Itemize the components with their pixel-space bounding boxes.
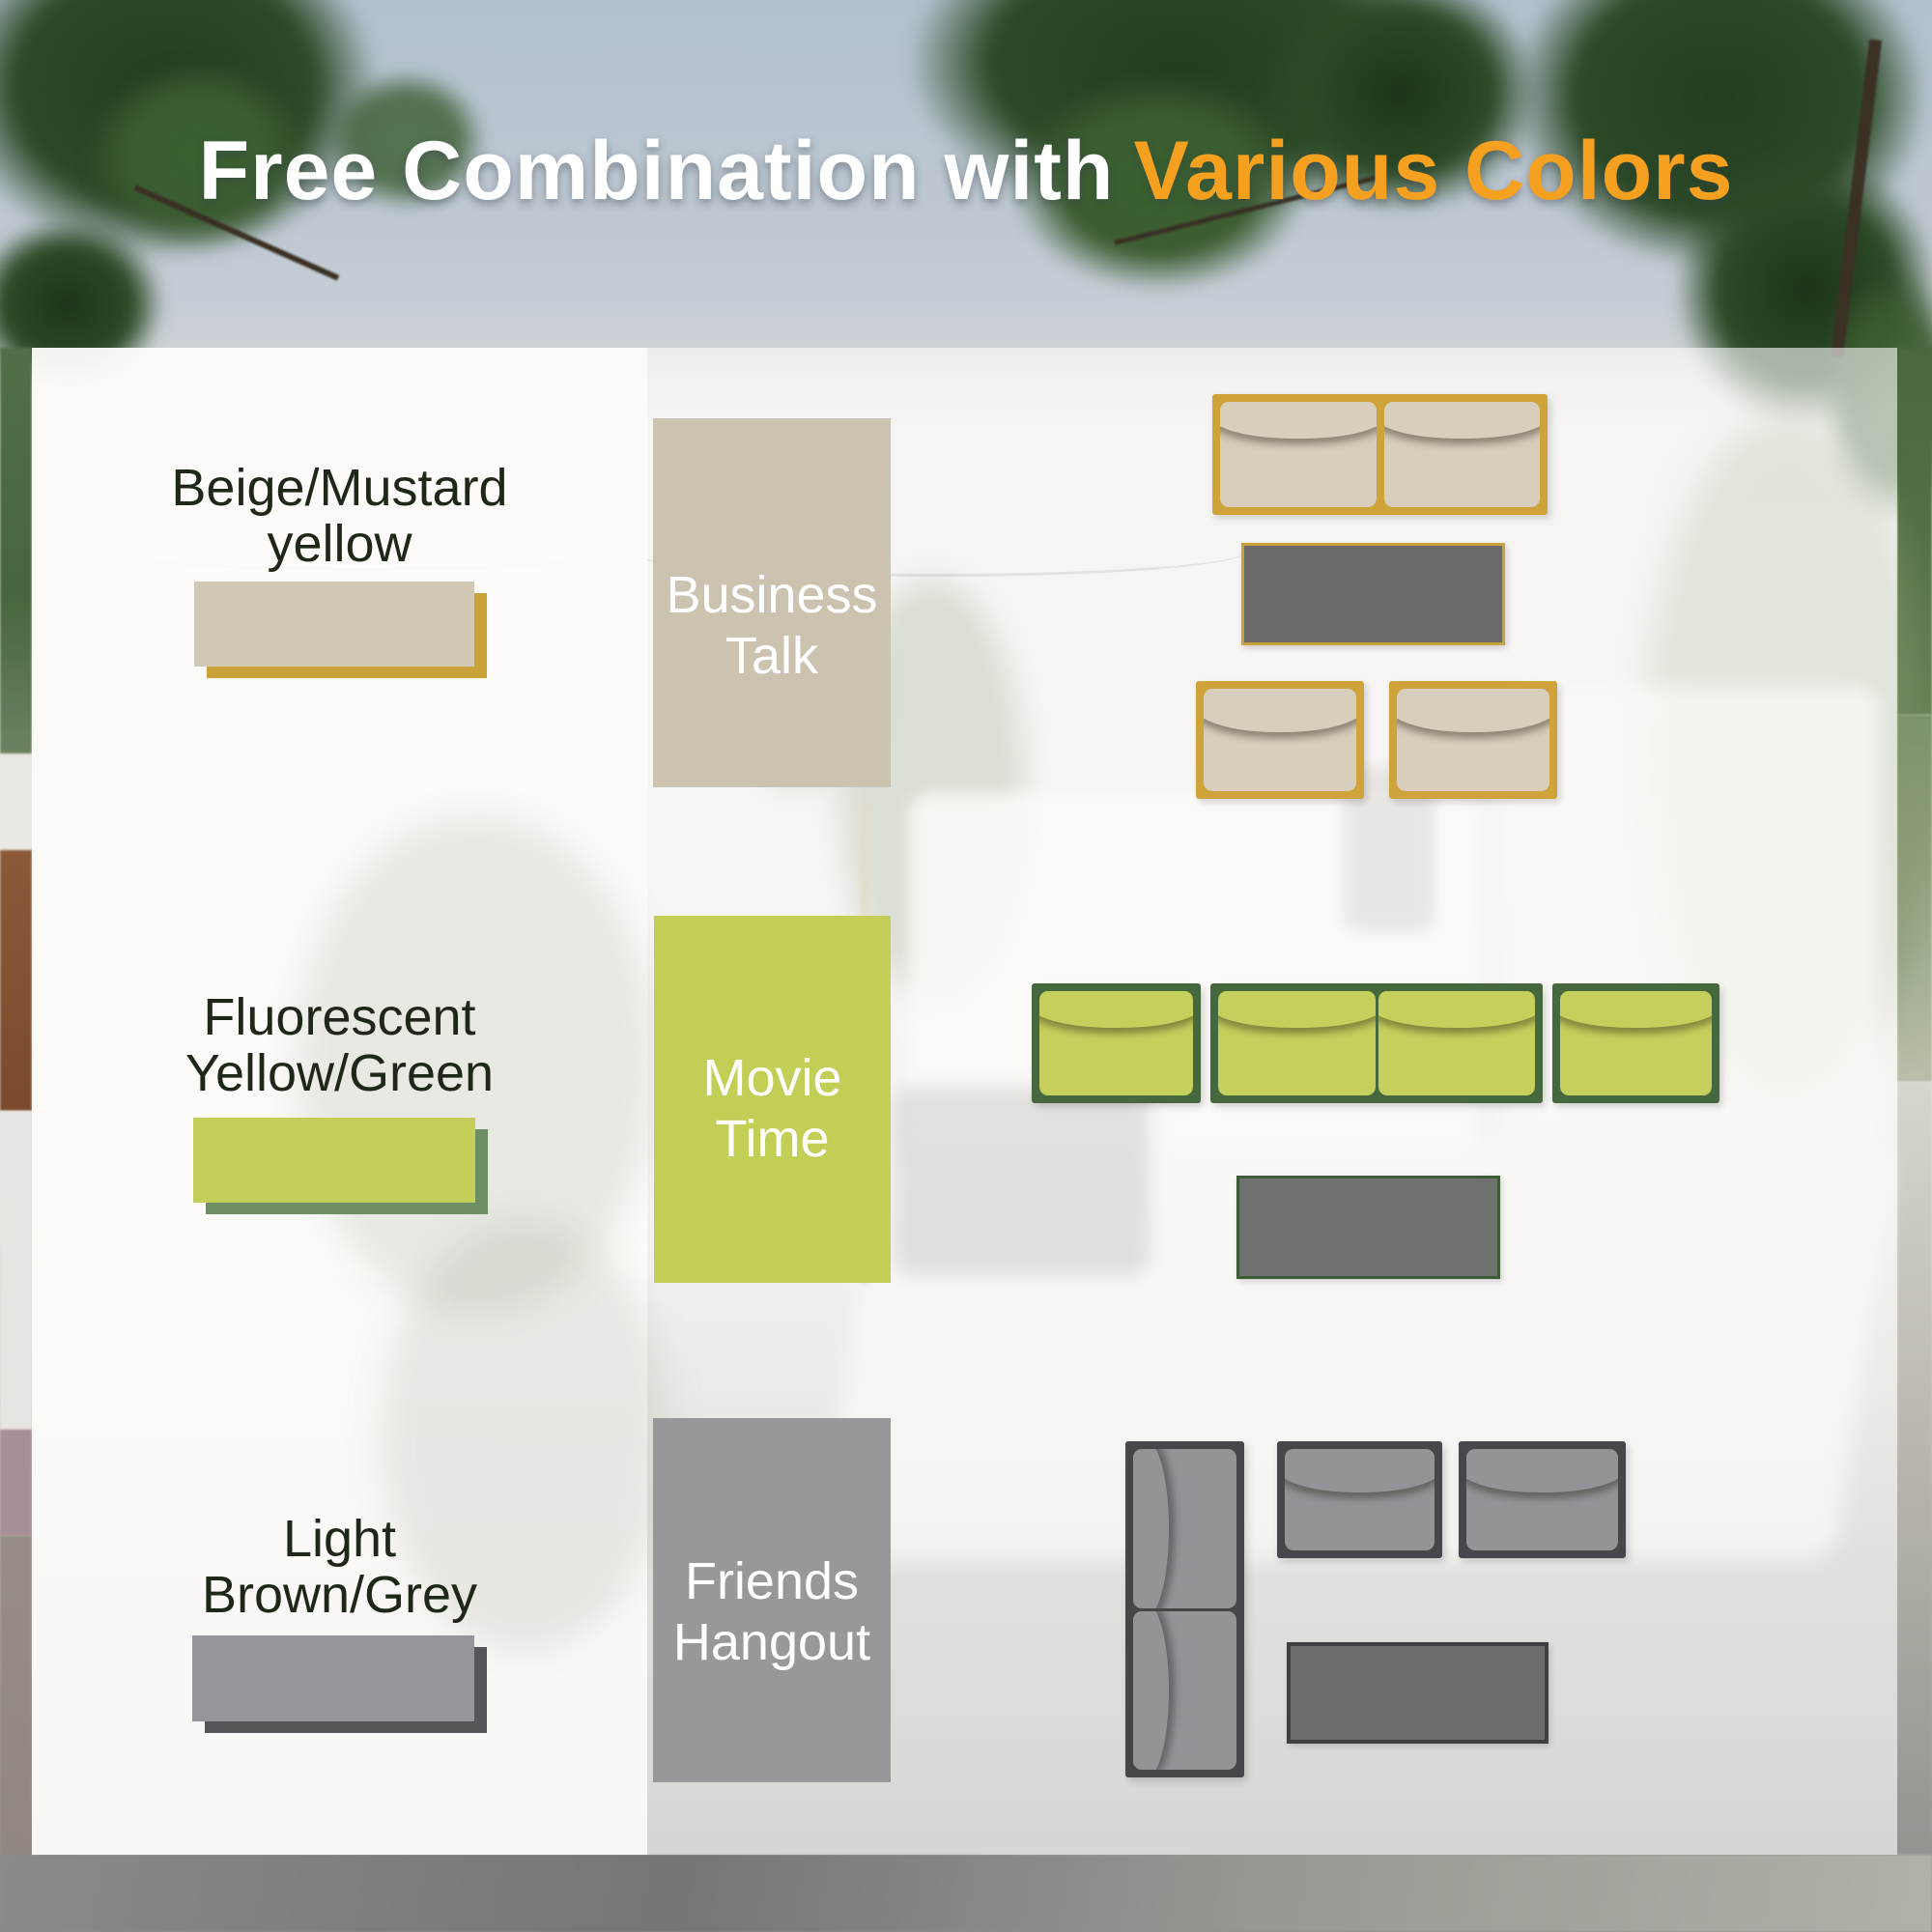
infographic-canvas: Free Combination withVarious Colors Beig…: [0, 0, 1932, 1932]
bottom-pavement: [0, 1855, 1932, 1932]
cushion: [1204, 689, 1356, 791]
scene-block-business-talk: Business Talk: [653, 418, 891, 787]
friends-hangout-chair-right: [1459, 1441, 1626, 1558]
swatch-fill-green: [193, 1118, 475, 1203]
title-white-part: Free Combination with: [199, 125, 1115, 217]
business-talk-chair-right: [1389, 681, 1557, 799]
business-talk-chair-left: [1196, 681, 1364, 799]
swatch-fill-beige: [194, 582, 474, 667]
right-edge-pavement: [1897, 1082, 1932, 1932]
business-talk-loveseat: [1212, 394, 1548, 515]
scene-line: Time: [702, 1109, 841, 1170]
scene-block-movie-time: Movie Time: [654, 916, 891, 1283]
scene-line: Hangout: [673, 1612, 870, 1673]
scene-line: Friends: [673, 1551, 870, 1612]
option-label-yellow-green: Fluorescent Yellow/Green: [32, 989, 647, 1101]
cushion: [1039, 991, 1193, 1095]
cushion: [1133, 1449, 1236, 1608]
movie-time-table: [1236, 1176, 1500, 1279]
cushion: [1220, 402, 1377, 507]
friends-hangout-vertical-sofa: [1125, 1441, 1244, 1777]
left-edge-flowers: [0, 1430, 32, 1536]
scene-line: Movie: [702, 1048, 841, 1109]
content-panel: Beige/Mustard yellow Fluorescent Yellow/…: [32, 348, 1897, 1855]
left-edge-greenery: [0, 348, 32, 753]
business-talk-table: [1241, 543, 1505, 645]
label-line: Brown/Grey: [32, 1567, 647, 1623]
option-label-beige-mustard: Beige/Mustard yellow: [32, 460, 647, 572]
cushion: [1560, 991, 1712, 1095]
left-edge-planter: [0, 850, 32, 1111]
label-line: Fluorescent: [32, 989, 647, 1045]
left-edge-rug: [0, 1111, 32, 1430]
cushion: [1397, 689, 1549, 791]
cushion: [1378, 991, 1536, 1095]
label-line: Light: [32, 1511, 647, 1567]
option-label-brown-grey: Light Brown/Grey: [32, 1511, 647, 1623]
cushion: [1384, 402, 1541, 507]
friends-hangout-table: [1287, 1642, 1548, 1744]
swatch-beige-mustard: [194, 582, 474, 667]
swatch-yellow-green: [193, 1118, 475, 1203]
title-accent-part: Various Colors: [1133, 125, 1733, 217]
label-line: Beige/Mustard: [32, 460, 647, 516]
cushion: [1285, 1449, 1435, 1550]
label-line: Yellow/Green: [32, 1045, 647, 1101]
scene-block-friends-hangout: Friends Hangout: [653, 1418, 891, 1782]
movie-time-chair-right: [1552, 983, 1719, 1103]
cushion: [1218, 991, 1376, 1095]
label-line: yellow: [32, 516, 647, 572]
scene-line: Talk: [666, 626, 877, 687]
movie-time-chair-left: [1032, 983, 1201, 1103]
movie-time-loveseat: [1210, 983, 1543, 1103]
scene-line: Business: [666, 565, 877, 626]
page-title: Free Combination withVarious Colors: [0, 124, 1932, 219]
swatch-brown-grey: [192, 1635, 474, 1721]
swatch-fill-grey: [192, 1635, 474, 1721]
friends-hangout-chair-left: [1277, 1441, 1442, 1558]
cushion: [1466, 1449, 1618, 1550]
cushion: [1133, 1611, 1236, 1771]
